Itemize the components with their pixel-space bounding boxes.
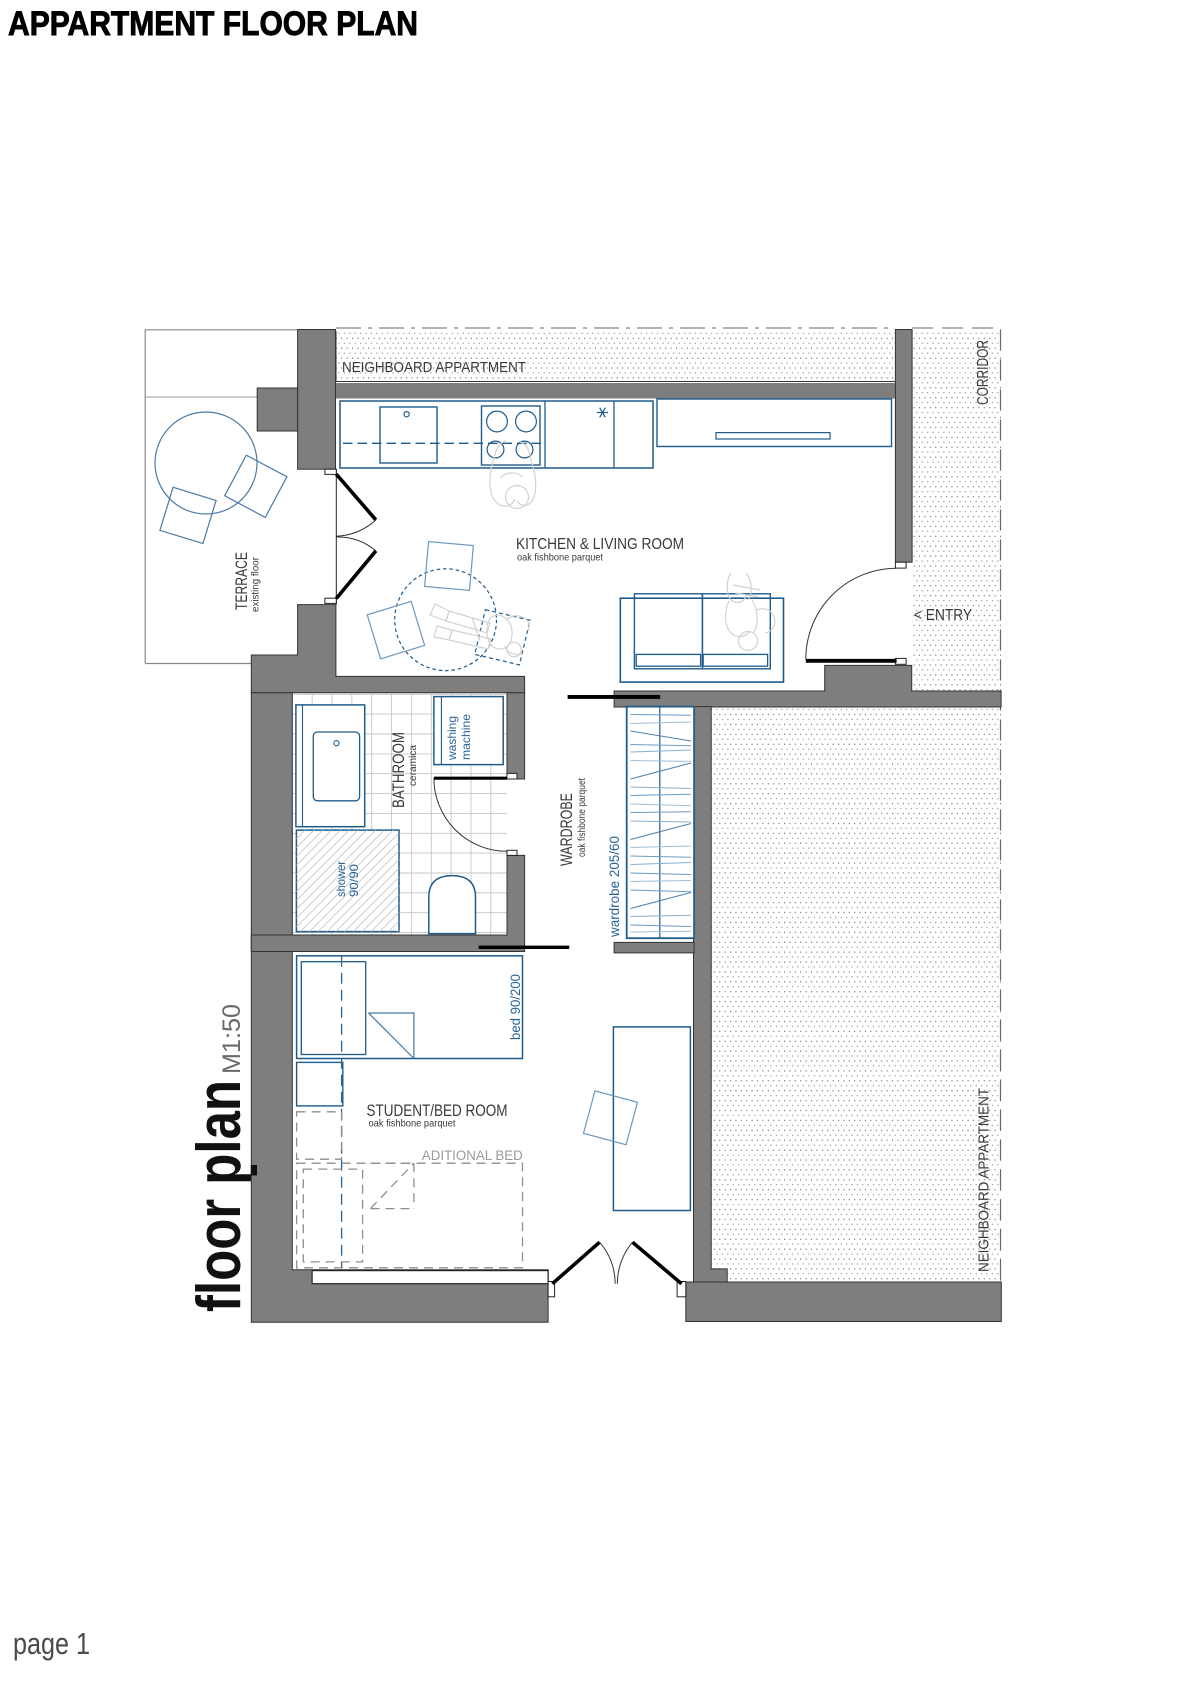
svg-text:existing floor: existing floor bbox=[250, 557, 262, 612]
svg-text:page 1: page 1 bbox=[13, 1626, 90, 1661]
svg-text:floor plan: floor plan bbox=[185, 1080, 254, 1312]
svg-text:oak fishbone parquet: oak fishbone parquet bbox=[576, 778, 588, 857]
svg-text:bed 90/200: bed 90/200 bbox=[507, 974, 523, 1040]
svg-text:ceramica: ceramica bbox=[407, 745, 419, 786]
svg-text:BATHROOM: BATHROOM bbox=[389, 732, 408, 808]
svg-text:oak fishbone parquet: oak fishbone parquet bbox=[517, 552, 603, 564]
svg-text:< ENTRY: < ENTRY bbox=[914, 607, 972, 624]
svg-text:shower: shower bbox=[334, 861, 348, 897]
svg-text:WARDROBE: WARDROBE bbox=[557, 793, 576, 866]
svg-text:APPARTMENT FLOOR PLAN: APPARTMENT FLOOR PLAN bbox=[8, 5, 418, 43]
svg-text:wardrobe 205/60: wardrobe 205/60 bbox=[606, 836, 622, 938]
svg-text:CORRIDOR: CORRIDOR bbox=[975, 340, 992, 405]
svg-text:NEIGHBOARD APPARTMENT: NEIGHBOARD APPARTMENT bbox=[342, 360, 526, 376]
svg-text:machine: machine bbox=[459, 714, 473, 760]
svg-text:90/90: 90/90 bbox=[347, 864, 361, 897]
svg-text:oak fishbone parquet: oak fishbone parquet bbox=[369, 1118, 456, 1130]
svg-text:TERRACE: TERRACE bbox=[233, 552, 251, 610]
svg-text:M1:50: M1:50 bbox=[218, 1004, 246, 1074]
svg-text:NEIGHBOARD APPARTMENT: NEIGHBOARD APPARTMENT bbox=[977, 1088, 993, 1272]
svg-text:ADITIONAL BED: ADITIONAL BED bbox=[422, 1148, 523, 1163]
svg-text:KITCHEN & LIVING ROOM: KITCHEN & LIVING ROOM bbox=[516, 536, 684, 553]
svg-text:washing: washing bbox=[445, 716, 459, 761]
